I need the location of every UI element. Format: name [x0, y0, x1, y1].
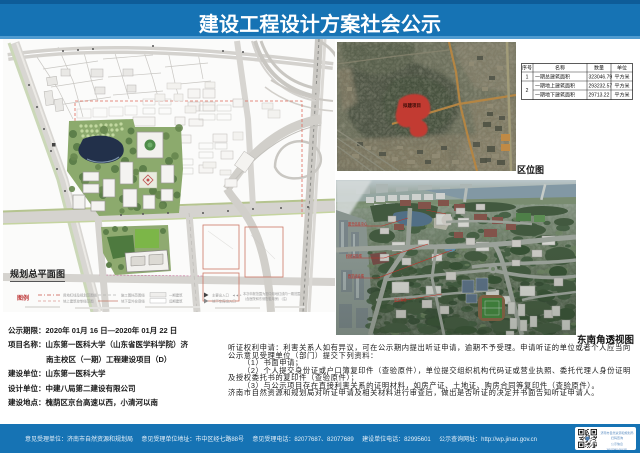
svg-text:29713.22: 29713.22	[589, 93, 610, 99]
svg-text:拟建项目: 拟建项目	[403, 102, 421, 109]
svg-text:地上建筑控制线范围: 地上建筑控制线范围	[63, 299, 94, 304]
svg-text:数量: 数量	[594, 65, 604, 72]
svg-text:地下车库出入口: 地下车库出入口	[212, 299, 236, 304]
svg-text:2: 2	[526, 88, 529, 94]
svg-text:一期地下建筑面积: 一期地下建筑面积	[535, 92, 575, 99]
svg-text:单位: 单位	[617, 65, 627, 72]
svg-text:地下室外轮廓线: 地下室外轮廓线	[121, 299, 145, 304]
svg-text:293232.57: 293232.57	[589, 84, 613, 90]
svg-text:序号: 序号	[522, 65, 532, 72]
svg-text:教学综合楼: 教学综合楼	[348, 273, 365, 278]
svg-text:平方米: 平方米	[614, 74, 629, 81]
svg-text:平方米: 平方米	[614, 92, 629, 99]
svg-text:远期建筑: 远期建筑	[169, 299, 183, 304]
svg-text:主要出入口: 主要出入口	[212, 293, 229, 298]
svg-text:323046.79: 323046.79	[589, 75, 613, 81]
svg-text:◄◄ +: ◄◄ +	[232, 294, 242, 298]
svg-text:用地红线及规划范围线: 用地红线及规划范围线	[63, 293, 98, 298]
svg-text:1: 1	[526, 75, 529, 81]
svg-text:本次申报范围为图中用地红线内一期范围: 本次申报范围为图中用地红线内一期范围	[243, 291, 300, 296]
svg-text:平方米: 平方米	[614, 83, 629, 90]
svg-text:施工围挡范围线: 施工围挡范围线	[121, 293, 145, 298]
svg-text:科研实验楼: 科研实验楼	[346, 253, 363, 258]
svg-text:一期地上建筑面积: 一期地上建筑面积	[535, 83, 575, 90]
svg-text:一期总建筑面积: 一期总建筑面积	[535, 74, 570, 81]
svg-text:学生宿舍: 学生宿舍	[394, 297, 408, 302]
svg-text:（含医院和东侧配套用房）（注）: （含医院和东侧配套用房）（注）	[243, 296, 289, 301]
svg-text:图书信息中心: 图书信息中心	[348, 221, 368, 226]
svg-text:名称: 名称	[555, 65, 565, 72]
svg-text:一期建筑: 一期建筑	[169, 293, 183, 298]
